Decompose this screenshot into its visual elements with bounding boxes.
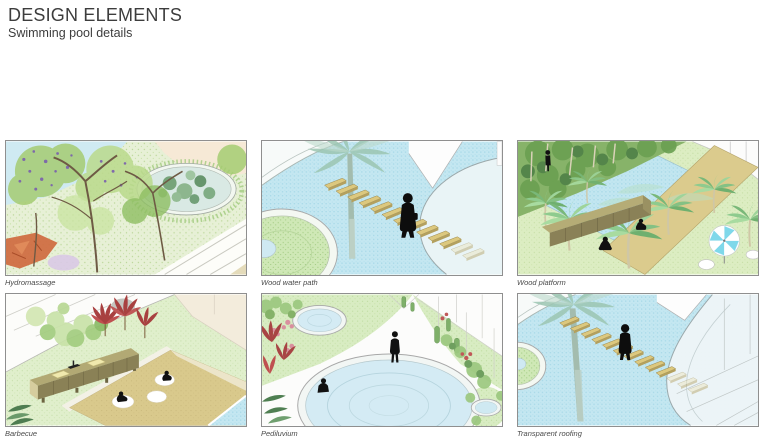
caption-wood-water-path: Wood water path — [261, 278, 503, 287]
barbecue-illustration — [6, 294, 246, 426]
panel-pediluvium: Pediluvium — [261, 293, 503, 438]
caption-transparent-roofing: Transparent roofing — [517, 429, 759, 438]
panel-wood-water-path: Wood water path — [261, 140, 503, 287]
hydromassage-frame — [5, 140, 247, 276]
wood-water-path-illustration — [262, 141, 502, 275]
pediluvium-frame — [261, 293, 503, 427]
slide-header: DESIGN ELEMENTS Swimming pool details — [8, 5, 182, 40]
wood-platform-illustration — [518, 141, 758, 275]
transparent-roofing-illustration — [518, 294, 758, 426]
panel-barbecue: Barbecue — [5, 293, 247, 438]
caption-hydromassage: Hydromassage — [5, 278, 247, 287]
caption-wood-platform: Wood platform — [517, 278, 759, 287]
slide-title: DESIGN ELEMENTS — [8, 5, 182, 25]
wood-water-path-frame — [261, 140, 503, 276]
slide-subtitle: Swimming pool details — [8, 26, 182, 40]
pediluvium-illustration — [262, 294, 502, 426]
panel-hydromassage: Hydromassage — [5, 140, 247, 287]
hydromassage-illustration — [6, 141, 246, 275]
barbecue-frame — [5, 293, 247, 427]
wood-platform-frame — [517, 140, 759, 276]
caption-pediluvium: Pediluvium — [261, 429, 503, 438]
transparent-roofing-frame — [517, 293, 759, 427]
table-round — [698, 260, 714, 270]
panel-wood-platform: Wood platform — [517, 140, 759, 287]
caption-barbecue: Barbecue — [5, 429, 247, 438]
tiny-pool — [471, 399, 501, 416]
panel-transparent-roofing: Transparent roofing — [517, 293, 759, 438]
small-pool — [293, 305, 347, 335]
